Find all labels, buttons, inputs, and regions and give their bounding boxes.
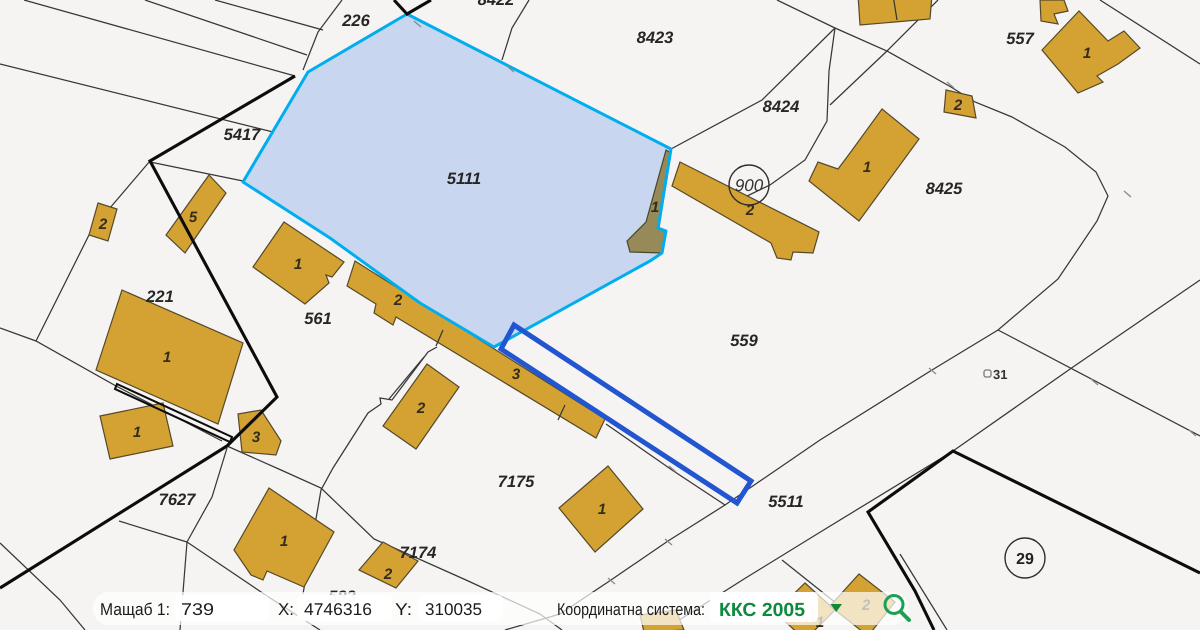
svg-text:31: 31 — [993, 367, 1007, 382]
svg-text:900: 900 — [735, 176, 764, 195]
svg-text:Y:: Y: — [395, 600, 412, 619]
svg-text:310035: 310035 — [425, 600, 482, 619]
svg-text:1: 1 — [863, 159, 871, 176]
svg-text:1: 1 — [133, 424, 141, 441]
svg-text:2: 2 — [745, 202, 755, 219]
svg-text:226: 226 — [341, 12, 370, 30]
svg-text:ККС 2005: ККС 2005 — [719, 600, 805, 621]
svg-text:1: 1 — [651, 199, 659, 216]
svg-text:7174: 7174 — [400, 544, 437, 562]
svg-text:1: 1 — [1083, 45, 1091, 62]
svg-text:2: 2 — [393, 292, 403, 309]
svg-text:Координатна система:: Координатна система: — [557, 600, 705, 619]
svg-text:1: 1 — [280, 533, 288, 550]
svg-text:5111: 5111 — [447, 170, 481, 188]
svg-text:X:: X: — [278, 600, 294, 619]
svg-text:5417: 5417 — [224, 126, 262, 144]
svg-text:2: 2 — [953, 97, 963, 114]
svg-text:5: 5 — [189, 209, 198, 226]
svg-text:Мащаб 1:: Мащаб 1: — [100, 600, 170, 619]
svg-text:8424: 8424 — [763, 98, 800, 116]
svg-text:2: 2 — [383, 566, 393, 583]
svg-text:2: 2 — [416, 400, 426, 417]
svg-text:3: 3 — [512, 366, 521, 383]
svg-text:8423: 8423 — [637, 29, 674, 47]
svg-text:29: 29 — [1016, 551, 1034, 568]
svg-text:8425: 8425 — [926, 180, 964, 198]
svg-text:4746316: 4746316 — [304, 600, 372, 619]
svg-text:7627: 7627 — [159, 491, 197, 509]
svg-text:5511: 5511 — [768, 493, 803, 511]
svg-text:221: 221 — [145, 288, 174, 306]
svg-text:1: 1 — [163, 349, 171, 366]
svg-text:2: 2 — [98, 216, 108, 233]
svg-text:557: 557 — [1006, 30, 1034, 48]
svg-text:7175: 7175 — [498, 473, 536, 491]
svg-text:1: 1 — [598, 501, 606, 518]
svg-text:3: 3 — [252, 429, 261, 446]
svg-text:8422: 8422 — [478, 0, 515, 9]
svg-text:559: 559 — [730, 332, 758, 350]
svg-text:739: 739 — [181, 600, 214, 619]
svg-text:1: 1 — [294, 256, 302, 273]
svg-text:561: 561 — [304, 310, 332, 328]
